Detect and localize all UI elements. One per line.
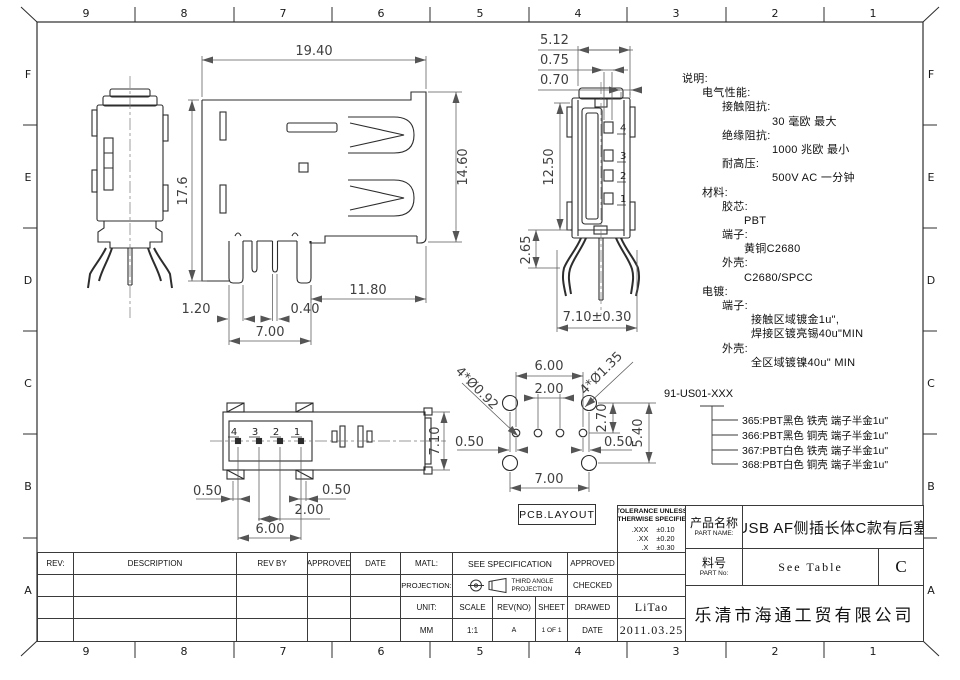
part-no-value: See Table — [742, 548, 879, 586]
rev-cell — [37, 618, 74, 642]
revby-cell — [236, 618, 308, 642]
grid-col: 4 — [575, 7, 582, 20]
note-line: 端子: — [722, 299, 917, 313]
callout-small-holes: 4*Ø0.92 — [452, 364, 501, 413]
part-number-variant: 365:PBT黑色 铁壳 端子半金1u" — [742, 413, 888, 428]
dim-front-base-height: 2.65 — [519, 236, 534, 265]
checked-label: CHECKED — [567, 574, 618, 597]
note-line: 黄铜C2680 — [744, 242, 917, 256]
grid-col: 1 — [870, 645, 877, 658]
revision-letter: C — [878, 548, 924, 586]
dim-front-wall: 0.70 — [540, 73, 569, 88]
note-line: 30 毫欧 最大 — [772, 115, 917, 129]
dim-bottom-span: 6.00 — [256, 522, 285, 537]
grid-row: C — [927, 377, 935, 390]
scale-label: SCALE — [452, 596, 493, 619]
dim-bottom-pitch: 2.00 — [295, 503, 324, 518]
note-line: 端子: — [722, 228, 917, 242]
note-line: 胶芯: — [722, 200, 917, 214]
approved-cell — [307, 618, 351, 642]
grid-col: 5 — [477, 7, 484, 20]
grid-row: F — [25, 68, 31, 81]
third-angle-projection-icon — [467, 577, 509, 594]
front-view-dims — [528, 46, 640, 332]
note-line: 外壳: — [722, 256, 917, 270]
revby-cell — [236, 596, 308, 619]
part-name-label: 产品名称 PART NAME: — [685, 505, 743, 549]
grid-row: B — [927, 480, 935, 493]
date-label: DATE — [567, 618, 618, 642]
note-line: PBT — [744, 214, 917, 228]
sheet-label: SHEET — [535, 596, 568, 619]
grid-col: 8 — [181, 645, 188, 658]
date-cell — [350, 618, 401, 642]
note-line: 焊接区镀亮锡40u"MIN — [751, 327, 917, 341]
approved-label: APPROVED — [567, 552, 618, 575]
note-line: 外壳: — [722, 342, 917, 356]
approved-value — [617, 552, 686, 575]
dim-side-pin-field: 11.80 — [349, 283, 386, 298]
dim-pcb-offset-right: 0.50 — [604, 435, 633, 450]
date-cell — [350, 596, 401, 619]
rev-cell — [37, 596, 74, 619]
side-view-dims — [188, 56, 462, 345]
dim-front-socket-depth: 12.50 — [542, 148, 557, 185]
grid-col: 2 — [772, 7, 779, 20]
projection-symbol-cell: THIRD ANGLE PROJECTION — [452, 574, 568, 597]
note-line: 说明: — [682, 72, 917, 86]
note-line: 材料: — [702, 186, 917, 200]
note-line: 接触阻抗: — [722, 100, 917, 114]
drawed-value: LiTao — [617, 596, 686, 619]
side-view-drawing — [202, 92, 426, 283]
grid-col: 6 — [378, 7, 385, 20]
rev-header: REV: — [37, 552, 74, 575]
grid-col: 6 — [378, 645, 385, 658]
pin-number: 2 — [620, 171, 626, 182]
unit-value: MM — [400, 618, 453, 642]
dim-pcb-mount-span: 7.00 — [535, 472, 564, 487]
spec-notes: 说明: 电气性能: 接触阻抗: 30 毫欧 最大 绝缘阻抗: 1000 兆欧 最… — [682, 72, 917, 370]
grid-col: 1 — [870, 7, 877, 20]
end-view-drawing — [88, 76, 172, 318]
tolerance-row: .XXX±0.10 — [628, 525, 674, 534]
description-header: DESCRIPTION — [73, 552, 237, 575]
projection-text: THIRD ANGLE PROJECTION — [512, 578, 554, 592]
note-line: 500V AC 一分钟 — [772, 171, 917, 185]
revno-label: REV(NO) — [492, 596, 536, 619]
tolerance-title: TOLERANCE UNLESS — [617, 508, 686, 516]
rev-cell — [37, 574, 74, 597]
tolerance-row: .X±0.30 — [628, 543, 674, 552]
part-name-value: USB AF侧插长体C款有后塞 — [742, 505, 924, 549]
company-name: 乐清市海通工贸有限公司 — [685, 585, 924, 642]
grid-row: D — [927, 274, 935, 287]
dim-front-leg-span: 7.10±0.30 — [563, 310, 632, 325]
part-number-base: 91-US01-XXX — [664, 388, 733, 400]
note-line: 全区域镀镍40u" MIN — [751, 356, 917, 370]
grid-col: 9 — [83, 7, 90, 20]
note-line: 电镀: — [702, 285, 917, 299]
dim-side-width: 19.40 — [295, 44, 332, 59]
pcb-layout-drawing — [503, 396, 597, 471]
pin-number: 4 — [620, 123, 626, 134]
tolerance-title: OTHERWISE SPECIFIED — [617, 516, 686, 524]
pin-number: 2 — [273, 427, 279, 438]
grid-col: 4 — [575, 645, 582, 658]
pin-number: 1 — [294, 427, 300, 438]
sheet-value: 1 OF 1 — [535, 618, 568, 642]
grid-row: A — [24, 584, 32, 597]
note-line: 绝缘阻抗: — [722, 129, 917, 143]
dim-pcb-row-span: 5.40 — [631, 419, 646, 448]
pin-number: 1 — [620, 194, 626, 205]
note-line: 电气性能: — [702, 86, 917, 100]
grid-row: E — [25, 171, 32, 184]
date-value: 2011.03.25 — [617, 618, 686, 642]
bottom-view-drawing — [210, 403, 446, 479]
grid-col: 5 — [477, 645, 484, 658]
part-number-variant: 367:PBT白色 铁壳 端子半金1u" — [742, 443, 888, 458]
note-line: 耐高压: — [722, 157, 917, 171]
description-cell — [73, 574, 237, 597]
revby-cell — [236, 574, 308, 597]
grid-row: C — [24, 377, 32, 390]
pcb-layout-label: PCB.LAYOUT — [518, 504, 596, 525]
tolerance-box: TOLERANCE UNLESS OTHERWISE SPECIFIED .XX… — [617, 505, 686, 553]
scale-value: 1:1 — [452, 618, 493, 642]
dim-side-pin-width: 0.40 — [291, 302, 320, 317]
dim-pcb-span: 6.00 — [535, 359, 564, 374]
date-header: DATE — [350, 552, 401, 575]
note-line: C2680/SPCC — [744, 271, 917, 285]
checked-value — [617, 574, 686, 597]
grid-row: A — [927, 584, 935, 597]
projection-label: PROJECTION: — [400, 574, 453, 597]
pin-number: 3 — [252, 427, 258, 438]
date-cell — [350, 574, 401, 597]
dim-side-height: 17.6 — [176, 177, 191, 206]
dim-bottom-offset-left: 0.50 — [193, 484, 222, 499]
part-number-variant: 366:PBT黑色 铜壳 端子半金1u" — [742, 428, 888, 443]
dim-side-leg-width: 1.20 — [182, 302, 211, 317]
dim-side-leg-span: 7.00 — [256, 325, 285, 340]
drawed-label: DRAWED — [567, 596, 618, 619]
grid-col: 7 — [280, 645, 287, 658]
grid-row: E — [928, 171, 935, 184]
grid-col: 3 — [673, 7, 680, 20]
grid-col: 2 — [772, 645, 779, 658]
grid-col: 7 — [280, 7, 287, 20]
dim-side-shell-height: 14.60 — [456, 148, 471, 185]
part-number-tree-lines — [700, 406, 738, 464]
grid-col: 9 — [83, 645, 90, 658]
approved-cell — [307, 596, 351, 619]
dim-pcb-row-offset: 2.70 — [595, 404, 610, 433]
dim-front-contact-width: 0.75 — [540, 53, 569, 68]
tolerance-row: .X°±3° — [632, 552, 671, 553]
pin-number: 3 — [620, 151, 626, 162]
dim-front-depth: 5.12 — [540, 33, 569, 48]
dim-bottom-offset-right: 0.50 — [322, 483, 351, 498]
note-line: 接触区域镀金1u", — [751, 313, 917, 327]
part-no-label: 料号 PART No: — [685, 548, 743, 586]
matl-label: MATL: — [400, 552, 453, 575]
revno-value: A — [492, 618, 536, 642]
matl-value: SEE SPECIFICATION — [452, 552, 568, 575]
pin-number: 4 — [231, 427, 237, 438]
callout-large-holes: 4*Ø1.35 — [577, 349, 626, 398]
note-line: 1000 兆欧 最小 — [772, 143, 917, 157]
unit-label: UNIT: — [400, 596, 453, 619]
description-cell — [73, 596, 237, 619]
front-view-drawing — [563, 82, 639, 316]
dim-pcb-offset-left: 0.50 — [455, 435, 484, 450]
tolerance-row: .XX±0.20 — [628, 534, 674, 543]
grid-row: F — [928, 68, 934, 81]
dim-bottom-width: 7.10 — [428, 427, 443, 456]
approved-cell — [307, 574, 351, 597]
description-cell — [73, 618, 237, 642]
grid-row: B — [24, 480, 32, 493]
dim-pcb-pitch: 2.00 — [535, 382, 564, 397]
grid-col: 3 — [673, 645, 680, 658]
part-number-variant: 368:PBT白色 铜壳 端子半金1u" — [742, 457, 888, 472]
revby-header: REV BY — [236, 552, 308, 575]
grid-row: D — [24, 274, 32, 287]
drawing-sheet: 9 8 7 6 5 4 3 2 1 9 8 7 6 5 4 3 2 1 F E … — [0, 0, 960, 680]
approved-header: APPROVED — [307, 552, 351, 575]
grid-col: 8 — [181, 7, 188, 20]
